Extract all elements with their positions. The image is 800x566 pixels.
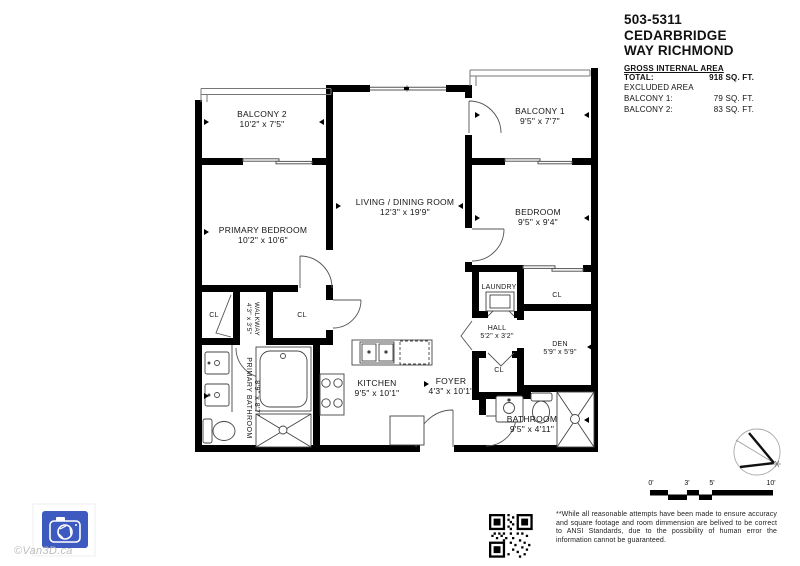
room-name: BEDROOM [515,207,561,217]
room-name: BALCONY 2 [237,109,287,119]
listing-title: 503-5311 CEDARBRIDGE WAY RICHMOND [624,12,778,59]
closet-label-hall: CL [494,367,503,375]
total-label: TOTAL: [624,73,654,84]
room-dims: 9'5" x 7'7" [515,116,565,126]
room-name: DEN [543,341,576,349]
room-dims: 9'5" x 10'1" [355,388,400,398]
room-dims: 10'2" x 10'6" [219,235,307,245]
title-line-2: WAY RICHMOND [624,43,734,58]
room-name: FOYER [429,376,474,386]
closet-text: CL [297,312,306,320]
room-label-bedroom: BEDROOM 9'5" x 9'4" [515,207,561,227]
room-label-den: DEN 5'9" x 5'9" [543,341,576,357]
room-label-bathroom: BATHROOM 9'5" x 4'11" [507,414,557,434]
closet-label-bedroom: CL [552,292,561,300]
room-label-living-dining: LIVING / DINING ROOM 12'3" x 19'9" [356,197,455,217]
balcony-railings [201,70,590,102]
room-name: PRIMARY BATHROOM [244,357,252,439]
laundry-fixtures [486,292,514,311]
room-dims: 9'5" x 9'4" [515,217,561,227]
balcony2-area-label: BALCONY 2: [624,105,673,116]
disclaimer-text: **While all reasonable attempts have bee… [556,511,777,546]
room-label-hall: HALL 5'2" x 3'2" [480,325,513,341]
scale-bar [650,490,773,500]
room-name: LAUNDRY [481,284,516,292]
title-line-1: 503-5311 CEDARBRIDGE [624,12,727,43]
room-name: BATHROOM [507,414,557,424]
scale-tick-10: 10' [766,480,775,487]
scale-tick-0: 0' [648,480,653,487]
room-dims: 5'2" x 3'2" [480,333,513,341]
room-name: LIVING / DINING ROOM [356,197,455,207]
room-name: PRIMARY BEDROOM [219,225,307,235]
room-name: HALL [480,325,513,333]
closet-text: CL [494,367,503,375]
balcony1-area-value: 79 SQ. FT. [714,94,754,105]
total-row: TOTAL: 918 SQ. FT. [624,73,754,84]
gross-internal-area-label: GROSS INTERNAL AREA [624,64,778,73]
room-dims: 12'3" x 19'9" [356,207,455,217]
excluded-balcony-1-row: BALCONY 1: 79 SQ. FT. [624,94,754,105]
room-dims: 10'2" x 7'5" [237,119,287,129]
room-label-balcony-2: BALCONY 2 10'2" x 7'5" [237,109,287,129]
closet-label-left: CL [209,312,218,320]
balcony2-area-value: 83 SQ. FT. [714,105,754,116]
compass-icon [734,429,781,475]
room-name: KITCHEN [355,378,400,388]
room-dims: 4'3" x 10'1" [429,386,474,396]
balcony1-area-label: BALCONY 1: [624,94,673,105]
closet-text: CL [552,292,561,300]
room-label-balcony-1: BALCONY 1 9'5" x 7'7" [515,106,565,126]
room-label-kitchen: KITCHEN 9'5" x 10'1" [355,378,400,398]
room-label-foyer: FOYER 4'3" x 10'1" [429,376,474,396]
header: 503-5311 CEDARBRIDGE WAY RICHMOND GROSS … [624,12,778,116]
closet-text: CL [209,312,218,320]
excluded-balcony-2-row: BALCONY 2: 83 SQ. FT. [624,105,754,116]
room-dims: 8'9" x 8'7" [252,357,260,439]
room-name: BALCONY 1 [515,106,565,116]
room-dims: 4'3" x 3'5" [244,302,252,336]
room-label-walkway: WALKWAY 4'3" x 3'5" [244,302,260,336]
room-dims: 5'9" x 5'9" [543,349,576,357]
room-name: WALKWAY [252,302,260,336]
total-value: 918 SQ. FT. [709,73,754,84]
room-label-laundry: LAUNDRY [481,284,516,292]
scale-tick-3: 3' [684,480,689,487]
room-label-primary-bedroom: PRIMARY BEDROOM 10'2" x 10'6" [219,225,307,245]
scale-tick-5: 5' [709,480,714,487]
excluded-area-label: EXCLUDED AREA [624,83,754,94]
room-label-primary-bathroom: PRIMARY BATHROOM 8'9" x 8'7" [244,357,260,439]
room-dims: 9'5" x 4'11" [507,424,557,434]
closet-label-right: CL [297,312,306,320]
qr-code [489,514,533,558]
excluded-label-text: EXCLUDED AREA [624,83,694,94]
watermark-text: ©Van3D.ca [14,545,73,557]
